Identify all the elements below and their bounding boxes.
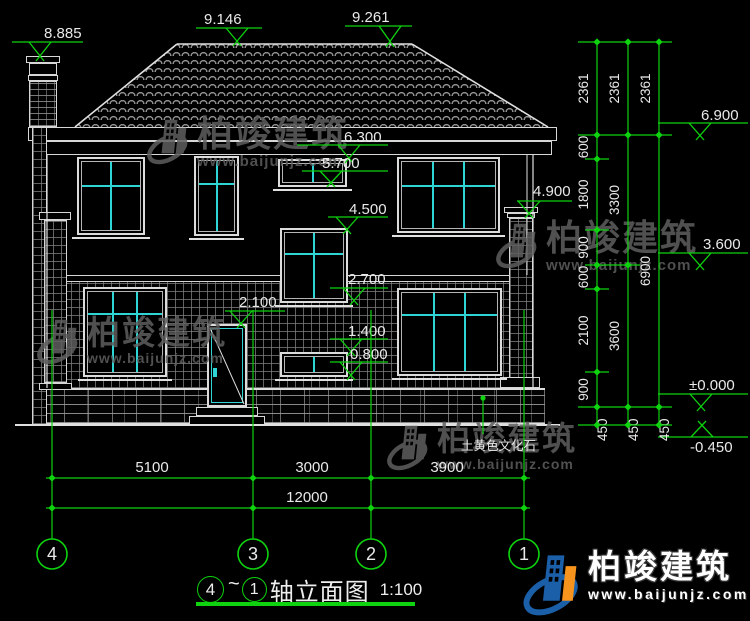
logo-building-icon	[522, 550, 584, 621]
watermark-building-icon	[522, 550, 584, 618]
title-axis-from-bubble: 4	[197, 576, 224, 603]
title-tilde: ~	[228, 573, 240, 596]
title-underline	[196, 602, 415, 606]
logo-layer: 柏竣建筑 www.baijunjz.com	[0, 0, 750, 621]
site-logo: 柏竣建筑 www.baijunjz.com	[522, 550, 749, 621]
cad-elevation-drawing: 柏竣建筑www.baijunjz.com柏竣建筑www.baijunjz.com…	[0, 0, 750, 621]
logo-brand-text: 柏竣建筑	[588, 550, 749, 583]
title-scale: 1:100	[380, 580, 423, 600]
logo-url-text: www.baijunjz.com	[588, 586, 749, 602]
title-axis-to-bubble: 1	[242, 577, 267, 602]
